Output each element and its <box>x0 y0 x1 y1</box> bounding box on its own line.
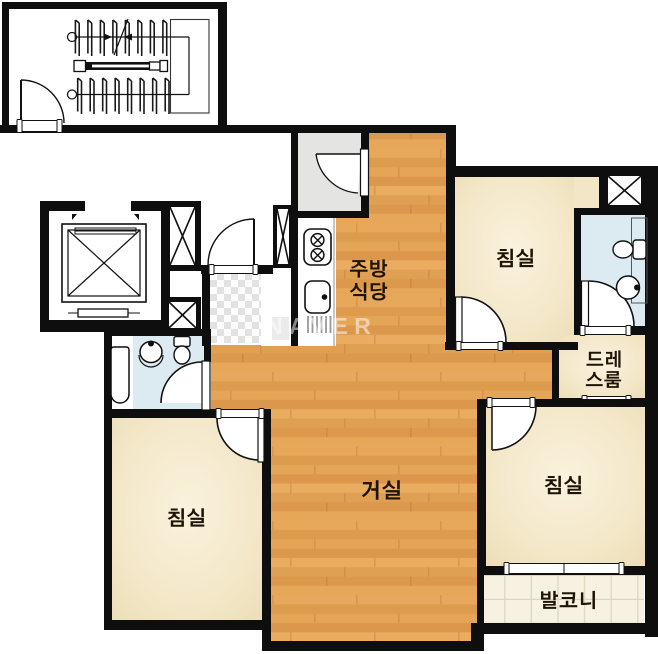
svg-text:NAVER: NAVER <box>266 313 377 339</box>
